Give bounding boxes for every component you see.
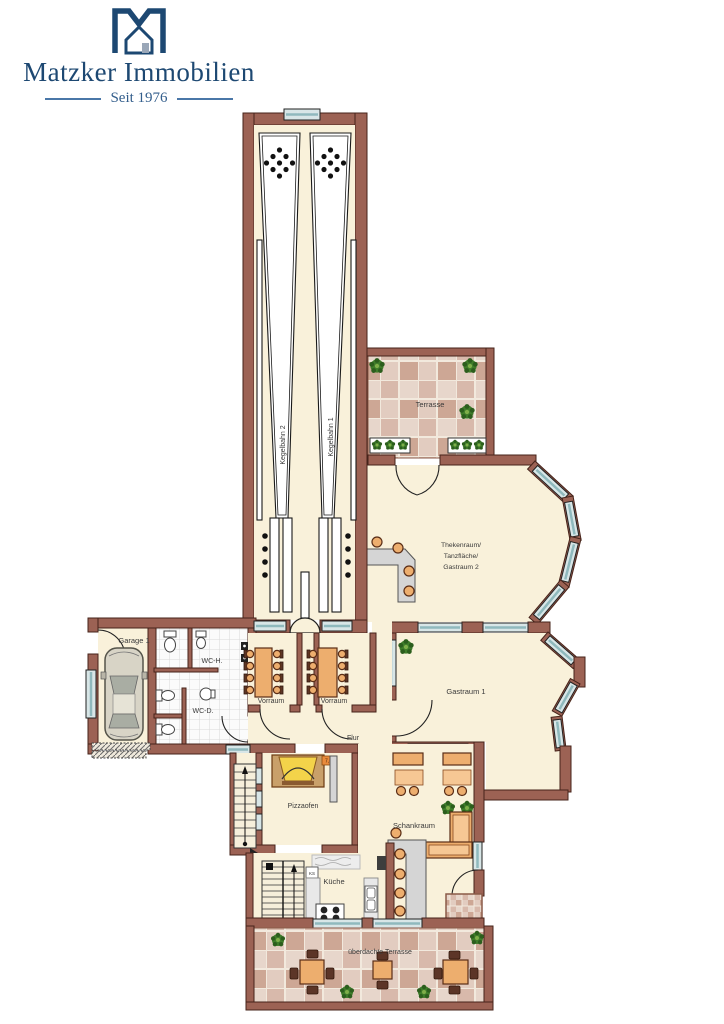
label-schankraum: Schankraum [393,821,435,830]
planter-box [370,438,410,453]
bar-stool [395,849,405,859]
arch-doorway [290,618,320,633]
window [373,919,422,928]
garage-apron [92,751,146,758]
label-wc-d: WC-D. [193,708,214,715]
terrace-bottom: überdachte Terrasse [246,926,493,1010]
staircase-upper [234,764,256,848]
floor-plan-drawing: Terrasse [0,0,724,1024]
bar-stool [395,888,405,898]
bar-stool [404,566,414,576]
counter [330,756,337,802]
label-ueberdachte-terrasse: überdachte Terrasse [348,949,412,956]
label-kegelbahn-2: Kegelbahn 2 [280,425,287,464]
label-thekenraum-2: Tanzfläche/ [444,553,478,560]
vorraum-flur: Vorraum Vorraum Flur [226,620,392,756]
planter-box [448,438,486,453]
bowling-wing: Kegelbahn 2 Kegelbahn 1 [243,109,367,633]
thekenraum-gastraum2: Thekenraum/ Tanzfläche/ Gastraum 2 [367,455,581,633]
window [473,842,482,870]
interior-window [483,623,528,632]
car [101,648,147,740]
label-thekenraum-1: Thekenraum/ [441,542,481,549]
label-flur: Flur [347,735,360,742]
garage-door [92,743,150,750]
window [284,109,320,120]
terrace-top: Terrasse [364,348,494,465]
staircase-lower [262,861,304,925]
interior-window [418,623,462,632]
label-terrasse: Terrasse [416,400,445,409]
ks-tag: KS [309,871,315,876]
bar-stool [372,537,382,547]
floor-plan-page: Matzker Immobilien Seit 1976 [0,0,724,1024]
label-wc-h: WC-H. [202,658,223,665]
bar-stool [393,543,403,553]
label-garage-1: Garage 1 [118,636,149,645]
bar-stool [395,906,405,916]
appliance [377,856,386,870]
label-kueche: Küche [323,877,344,886]
window [313,919,362,928]
window [86,670,96,718]
bar-stool [404,586,414,596]
window [254,621,286,631]
window [322,621,352,631]
label-vorraum-right: Vorraum [321,698,348,705]
label-pizzaofen: Pizzaofen [288,803,319,810]
garage-wc-block: Garage 1 WC-H. WC-D. [86,618,256,758]
label-kegelbahn-1: Kegelbahn 1 [328,417,335,456]
bar-stool [395,869,405,879]
label-vorraum-left: Vorraum [258,698,285,705]
label-thekenraum-3: Gastraum 2 [443,564,479,571]
label-gastraum-1: Gastraum 1 [446,687,485,696]
